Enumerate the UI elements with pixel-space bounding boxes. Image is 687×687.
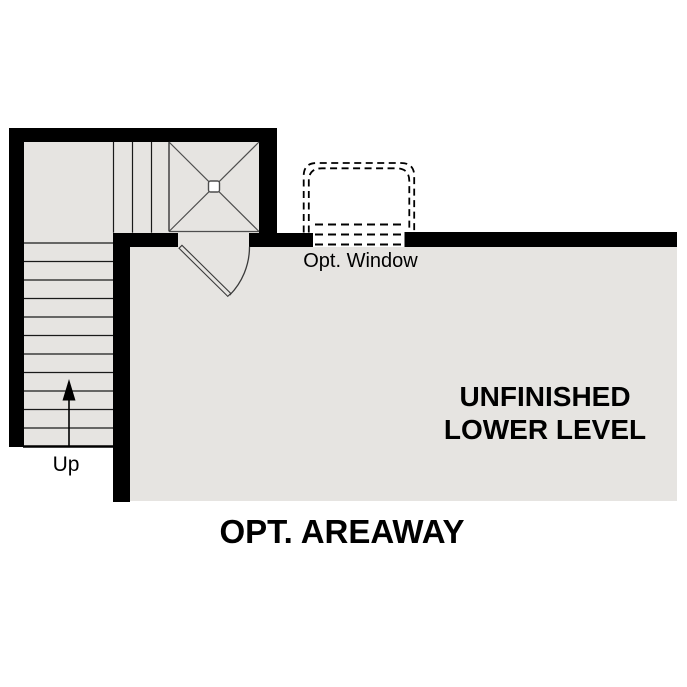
wall-top-between-door-and-window [249,233,313,247]
stair-landing-floor [24,142,259,233]
room-label-line1: UNFINISHED [420,380,670,413]
stairs-up-label: Up [36,453,96,477]
door-opening-floor [178,233,249,247]
stair-run-floor [24,233,113,447]
areaway-dashed-outline [304,163,415,233]
room-label-line2: LOWER LEVEL [420,413,670,446]
opt-window-label: Opt. Window [290,250,431,273]
optional-window [313,222,405,247]
wall-stair-top [9,128,277,142]
floor-plan: Up Opt. Window UNFINISHED LOWER LEVEL OP… [0,0,687,687]
wall-stair-left [9,128,24,447]
wall-room-left [113,233,130,502]
unfinished-lower-level-floor [130,247,677,501]
wall-top-left-of-door [113,233,178,247]
plan-title: OPT. AREAWAY [192,513,492,551]
room-label: UNFINISHED LOWER LEVEL [420,380,670,446]
wall-stair-right [259,128,277,247]
wall-top-right-of-window [404,232,677,247]
